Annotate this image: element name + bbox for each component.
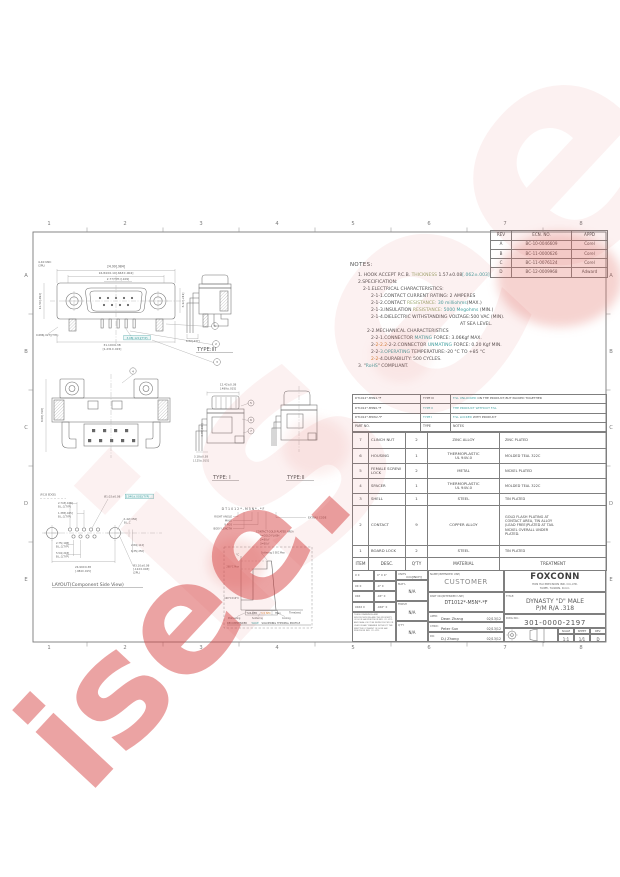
dim-label: [1.231±.015] xyxy=(103,347,122,351)
table-cell: F.SL LOCKED WITH PRODUCT xyxy=(451,413,607,422)
border-ruler-label: 8 xyxy=(579,645,582,651)
table-cell: MOLDED TEAL 322C xyxy=(500,479,607,494)
scale-value-cell: 1:1 xyxy=(558,634,574,642)
dim-label: 260°C Max xyxy=(226,566,239,569)
dim-label: CONTACT GOLD PLATED AREA xyxy=(256,530,294,534)
chkd-cell: CHKD: Peter Sun 02/13/12 xyxy=(428,622,504,632)
dim-label: 3 xyxy=(216,360,218,364)
table-cell: COPPER ALLOY xyxy=(428,506,500,546)
dim-label: 12.50[.492] xyxy=(38,293,42,309)
tolerance-cell: XXX ±0.38[.015] xyxy=(352,591,374,602)
border-ruler-label: 3 xyxy=(199,221,202,227)
dim-label: 24.99[.984] xyxy=(107,265,125,269)
border-ruler-label: 7 xyxy=(503,645,506,651)
contact-pins xyxy=(88,297,135,442)
table-cell: ECN. NO. xyxy=(512,231,572,241)
parts-row: 5FEMALE SCREW LOCK2METALNICKEL PLATED xyxy=(353,464,607,479)
dim-label: EXTRAS CODE xyxy=(308,516,327,520)
company-cell: FOXCONN HON HAI PRECISION IND. CO.,LTD. … xyxy=(504,570,606,592)
dim-label: B.L.C(TYP) xyxy=(58,505,71,509)
dim-label: [.125±.015] xyxy=(193,459,209,463)
note-line: 2-1-2.CONTACT RESISTANCE: 30 milliohms(M… xyxy=(350,300,608,307)
dim-label: [.040±.003](TYP) xyxy=(126,495,149,499)
finish-cell: FINISH N/A xyxy=(396,601,428,622)
note-line: 2-1-4.DIELECTRIC WITHSTANDING VOLTAGE:50… xyxy=(350,314,608,321)
table-cell: 1 xyxy=(406,449,428,464)
border-ruler-label: A xyxy=(609,273,613,279)
tolerance-cell: XX ± xyxy=(352,581,374,592)
revision-row: BBC-11-0000626Corel xyxy=(491,249,608,258)
notes-block: NOTES: 1. HOOK ACCEPT P.C.B. THICKNESS 1… xyxy=(350,262,608,370)
dim-label: 3=50u" xyxy=(260,542,270,546)
dim-label: 2 xyxy=(215,342,217,346)
title-cell: TITLE: DYNASTY "D" MALE P/M R/A .318 xyxy=(504,592,606,614)
dim-label: 2.743[.108] xyxy=(58,501,73,505)
border-ruler-label: 1 xyxy=(47,645,50,651)
border-ruler-label: 4 xyxy=(275,645,278,651)
table-cell: 5 xyxy=(353,464,369,479)
table-cell: BOARD LOCK xyxy=(369,546,406,558)
table-cell: THE PRODUCT WITHOUT F.SL xyxy=(451,404,607,413)
dim-label: Preheating xyxy=(228,617,241,620)
parts-row: 1BOARD LOCK2STEELTIN PLATED xyxy=(353,546,607,558)
note-line: 2-1-1.CONTACT CURRENT RATING: 2 AMPERES xyxy=(350,293,608,300)
dim-label: RECOMMENDED xyxy=(227,621,247,625)
dim-label: Soldering 5 SEC Max xyxy=(261,552,285,555)
dim-label: SOLDER xyxy=(247,611,257,615)
table-cell: Corel xyxy=(572,240,608,249)
dim-label: B.L.C(TYP) xyxy=(58,515,71,519)
border-ruler-label: B xyxy=(24,349,28,355)
table-cell: CLINCH NUT xyxy=(369,432,406,449)
dr-cell: DR: D.J Zhang 02/13/12 xyxy=(428,632,504,642)
dim-label: B.L.C(TYP) xyxy=(56,545,69,549)
type-variant-row: DT1012*-M5N0-*FTYPE IITHE PRODUCT WITHOU… xyxy=(353,404,607,413)
table-cell: F.SL UNLOCKED ON THE PRODUCT,BUT PACKED … xyxy=(451,395,607,404)
disclaimer: THESE DRAWINGS AND SPECIFICATIONS ARE TH… xyxy=(352,612,396,642)
table-cell: 2 xyxy=(406,546,428,558)
dim-label: 8.08[.318] xyxy=(40,408,44,422)
table-cell: TIN PLATED xyxy=(500,494,607,506)
dim-label: 5 xyxy=(250,401,252,405)
tolerance-cell: .XXX° ± xyxy=(374,602,396,613)
table-cell: 3 xyxy=(353,494,369,506)
dim-label: *=GOLD FLASH xyxy=(260,534,280,538)
dim-label: D T 1 0 1 2 * - M 5 N * - * F xyxy=(222,507,265,511)
rev-value-cell: D xyxy=(590,634,606,642)
dim-label: 3.18±0.38 xyxy=(194,455,209,459)
table-cell: BC-11-0000626 xyxy=(512,249,572,258)
dim-label: SOLDERING THERMAL PROFILE xyxy=(262,621,301,625)
dim-label: 16.84±0.10[.663±.004] xyxy=(99,271,134,275)
dim-label: 0.76[.030] xyxy=(200,423,204,436)
border-ruler-label: D xyxy=(24,501,28,507)
table-cell: DT1012*-M5W2-*F xyxy=(353,413,421,422)
table-cell: 4 xyxy=(353,479,369,494)
dim-label: 6.02[.237] xyxy=(186,339,200,343)
type-variant-table: DT1012*-M5N2-*FTYPE IIIF.SL UNLOCKED ON … xyxy=(352,394,607,433)
tolerance-cell: X° ± 4° xyxy=(374,570,396,581)
parts-row: 3SHELL1STEELTIN PLATED xyxy=(353,494,607,506)
border-ruler-label: 2 xyxy=(123,221,126,227)
table-cell: A xyxy=(491,240,512,249)
type-variant-row: DT1012*-M5W2-*FTYPE IF.SL LOCKED WITH PR… xyxy=(353,413,607,422)
dim-label: (P.C.B EDGE) xyxy=(40,493,56,497)
table-cell: TYPE III xyxy=(421,395,451,404)
dim-label: MALE xyxy=(225,519,232,523)
border-ruler-label: C xyxy=(24,425,28,431)
table-cell: B xyxy=(491,249,512,258)
table-cell: SHELL xyxy=(369,494,406,506)
dim-label: 2.75[.108] xyxy=(56,541,69,545)
border-ruler-label: D xyxy=(609,501,613,507)
qty-cell: Q'TY N/A xyxy=(396,621,428,642)
tolerance-cell: .XX° ± xyxy=(374,591,396,602)
note-line: AT SEA LEVEL. xyxy=(350,321,608,328)
table-cell: STEEL xyxy=(428,494,500,506)
dim-label: 3.08[.121](TYP) xyxy=(126,336,147,340)
table-cell: METAL xyxy=(428,464,500,479)
note-line: 2-1.ELECTRICAL CHARACTERISTICS: xyxy=(350,286,608,293)
dim-label: [.984±.015] xyxy=(75,569,91,573)
table-cell: TREATMENT xyxy=(500,558,607,571)
drawing-number: 301-0000-2197 xyxy=(505,619,605,627)
table-cell: DT1012*-M5N2-*F xyxy=(353,395,421,404)
table-cell: THERMOPLASTIC UL 94V-0 xyxy=(428,449,500,464)
table-cell: ZINC PLATED xyxy=(500,432,607,449)
dim-label: B.L.C xyxy=(124,521,131,525)
note-line: 2-2-3.OPERATING TEMPERATURE:-20 °C TO +8… xyxy=(350,349,608,356)
table-cell: 1 xyxy=(406,494,428,506)
table-cell: 1 xyxy=(353,546,369,558)
dim-label: 6.12[.241] xyxy=(181,293,185,308)
table-cell: NICKEL PLATED xyxy=(500,464,607,479)
view-label: LAYOUT(Component Side View) xyxy=(52,582,124,588)
table-cell: BC-10-0046609 xyxy=(512,240,572,249)
border-ruler-label: 3 xyxy=(199,645,202,651)
table-cell: APPD xyxy=(572,231,608,241)
border-ruler-label: 4 xyxy=(275,221,278,227)
dim-label: RIGHT ANGLE xyxy=(214,515,232,519)
border-ruler-label: 6 xyxy=(427,221,430,227)
table-cell: MOLDED TEAL 322C xyxy=(500,449,607,464)
border-ruler-label: B xyxy=(609,349,613,355)
note-line: 1. HOOK ACCEPT P.C.B. THICKNESS 1.57±0.0… xyxy=(350,272,608,279)
view-label: TYPE:II xyxy=(286,475,305,481)
table-cell: CONTACT xyxy=(369,506,406,546)
dim-label: 3-5 SEC xyxy=(261,611,271,615)
part-number-cell: PART NO(INTENDED USE) DT1012*-M5N*-*F xyxy=(428,592,504,612)
units-cell: UNITS mm[INCH] xyxy=(396,570,428,580)
dim-label: 6 xyxy=(250,418,252,422)
table-cell: STEEL xyxy=(428,546,500,558)
matl-cell: MAT'L N/A xyxy=(396,580,428,601)
dim-label: WAVE xyxy=(252,621,260,625)
dim-label: Ø1.02±0.08 xyxy=(104,494,121,499)
tolerance-cell: .X° ± xyxy=(374,581,396,592)
table-cell: HOUSING xyxy=(369,449,406,464)
note-line: 2-2-1.CONNECTOR MATING FORCE: 3.06Kgf MA… xyxy=(350,335,608,342)
dim-label: 7 xyxy=(250,429,252,433)
dim-label: [.489±.015] xyxy=(220,387,236,391)
type-variant-row: DT1012*-M5N2-*FTYPE IIIF.SL UNLOCKED ON … xyxy=(353,395,607,404)
parts-row: 4SPACER1THERMOPLASTIC UL 94V-0MOLDED TEA… xyxy=(353,479,607,494)
border-ruler-label: 7 xyxy=(503,221,506,227)
dim-label: 2.84[.112] xyxy=(131,543,144,547)
table-cell: DT1012*-M5N0-*F xyxy=(353,404,421,413)
table-cell: 2 xyxy=(406,464,428,479)
revision-row: REVECN. NO.APPD xyxy=(491,231,608,241)
dim-label: °C xyxy=(236,553,239,557)
dim-label: 2.77(TYP.)[.109] xyxy=(107,277,129,281)
table-cell: TIN PLATED xyxy=(500,546,607,558)
table-cell: Corel xyxy=(572,249,608,258)
view-label: TYPE:III xyxy=(196,347,217,353)
projection-cell xyxy=(504,628,558,642)
dim-label: 100°C±10°C xyxy=(224,597,239,600)
revision-row: ABC-10-0046609Corel xyxy=(491,240,608,249)
note-line: 2-2-2.2-2-2.CONNECTOR UNMATING FORCE: 0.… xyxy=(350,342,608,349)
dim-label: Time(sec) xyxy=(289,611,301,615)
note-line: 2-2-4.DURABILITY: 500 CYCLES. xyxy=(350,356,608,363)
dim-label: 9 POS xyxy=(224,523,232,527)
note-line: 2.SPECIFICATION: xyxy=(350,279,608,286)
parts-row: 2CONTACT9COPPER ALLOYGOLD FLASH PLATING … xyxy=(353,506,607,546)
border-ruler-label: 5 xyxy=(351,645,354,651)
parts-row: 7CLINCH NUT2ZINC ALLOYZINC PLATED xyxy=(353,432,607,449)
dim-label: 4 xyxy=(132,369,134,373)
dim-label: 6.35[.250] xyxy=(131,549,144,553)
tolerance-cell: X ± xyxy=(352,570,374,581)
view-label: TYPE: I xyxy=(212,475,231,481)
border-ruler-label: 1 xyxy=(47,221,50,227)
notes-title: NOTES: xyxy=(350,262,608,269)
dim-label: Cooling xyxy=(282,617,291,620)
table-cell: 2 xyxy=(406,432,428,449)
border-ruler-label: A xyxy=(24,273,28,279)
drawing-sheet: 24.99[.984]16.84±0.10[.663±.004]2.77(TYP… xyxy=(0,0,620,877)
table-cell: TYPE II xyxy=(421,404,451,413)
table-cell: 2 xyxy=(353,506,369,546)
table-cell: 9 xyxy=(406,506,428,546)
note-line: 2-1-3.INSULATION RESISTANCE: 5000 Megohm… xyxy=(350,307,608,314)
table-cell: ZINC ALLOY xyxy=(428,432,500,449)
dim-label: 1 xyxy=(214,324,216,328)
dim-label: BODY LENGTH xyxy=(213,527,232,531)
dim-label: 1.42[.056] xyxy=(124,517,137,521)
border-ruler-label: 6 xyxy=(427,645,430,651)
table-cell: Q'TY xyxy=(406,558,428,571)
parts-row: 6HOUSING1THERMOPLASTIC UL 94V-0MOLDED TE… xyxy=(353,449,607,464)
customer-cell: NAME(INTENDED USE) CUSTOMER xyxy=(428,570,504,592)
border-ruler-label: E xyxy=(609,577,612,583)
parts-list-table: 7CLINCH NUT2ZINC ALLOYZINC PLATED6HOUSIN… xyxy=(352,431,607,571)
table-cell: SPACER xyxy=(369,479,406,494)
table-cell: 6 xyxy=(353,449,369,464)
sheet-value-cell: 1/1 xyxy=(574,634,590,642)
appd-cell: APPD: Dean Zhang 02/13/12 xyxy=(428,612,504,622)
dimension-labels: 24.99[.984]16.84±0.10[.663±.004]2.77(TYP… xyxy=(36,260,327,625)
tolerance-cell: XXXX ± xyxy=(352,602,374,613)
dim-label: 5.54[.218] xyxy=(56,551,69,555)
dim-label: Max xyxy=(276,611,282,615)
border-ruler-label: 2 xyxy=(123,645,126,651)
dim-label: 24.99±0.38 xyxy=(75,565,91,569)
table-cell: 7 xyxy=(353,432,369,449)
border-ruler-label: 8 xyxy=(579,221,582,227)
dim-label: B.L.C(TYP) xyxy=(56,555,69,559)
table-cell: THERMOPLASTIC UL 94V-0 xyxy=(428,479,500,494)
border-ruler-label: 5 xyxy=(351,221,354,227)
dim-label: 1.385[.045] xyxy=(58,511,73,515)
table-cell: 1 xyxy=(406,479,428,494)
dim-label: 0.686[.027](TYP.) xyxy=(36,333,58,337)
table-cell: REV xyxy=(491,231,512,241)
note-line: 2-2.MECHANICAL CHARACTERISTICS xyxy=(350,328,608,335)
drawing-title: DYNASTY "D" MALE xyxy=(505,598,605,605)
table-cell: TYPE I xyxy=(421,413,451,422)
foxconn-logo: FOXCONN xyxy=(505,572,605,582)
table-cell: FEMALE SCREW LOCK xyxy=(369,464,406,479)
border-ruler-label: C xyxy=(609,425,613,431)
table-cell: GOLD FLASH PLATING AT CONTACT AREA, TIN … xyxy=(500,506,607,546)
table-cell: MATERIAL xyxy=(428,558,500,571)
dim-label: (2PL) xyxy=(133,571,140,575)
dim-label: 2=30u" xyxy=(260,538,270,542)
table-cell: DESC. xyxy=(369,558,406,571)
dwg-no-cell: DWG NO.: 301-0000-2197 xyxy=(504,614,606,628)
parts-row: ITEMDESC.Q'TYMATERIALTREATMENT xyxy=(353,558,607,571)
dim-label: (2PL) xyxy=(38,264,45,268)
dim-label: Soldering xyxy=(252,617,263,620)
table-cell: ITEM xyxy=(353,558,369,571)
border-ruler-label: E xyxy=(24,577,27,583)
note-line: 3. "RoHS" COMPLIANT. xyxy=(350,363,608,370)
